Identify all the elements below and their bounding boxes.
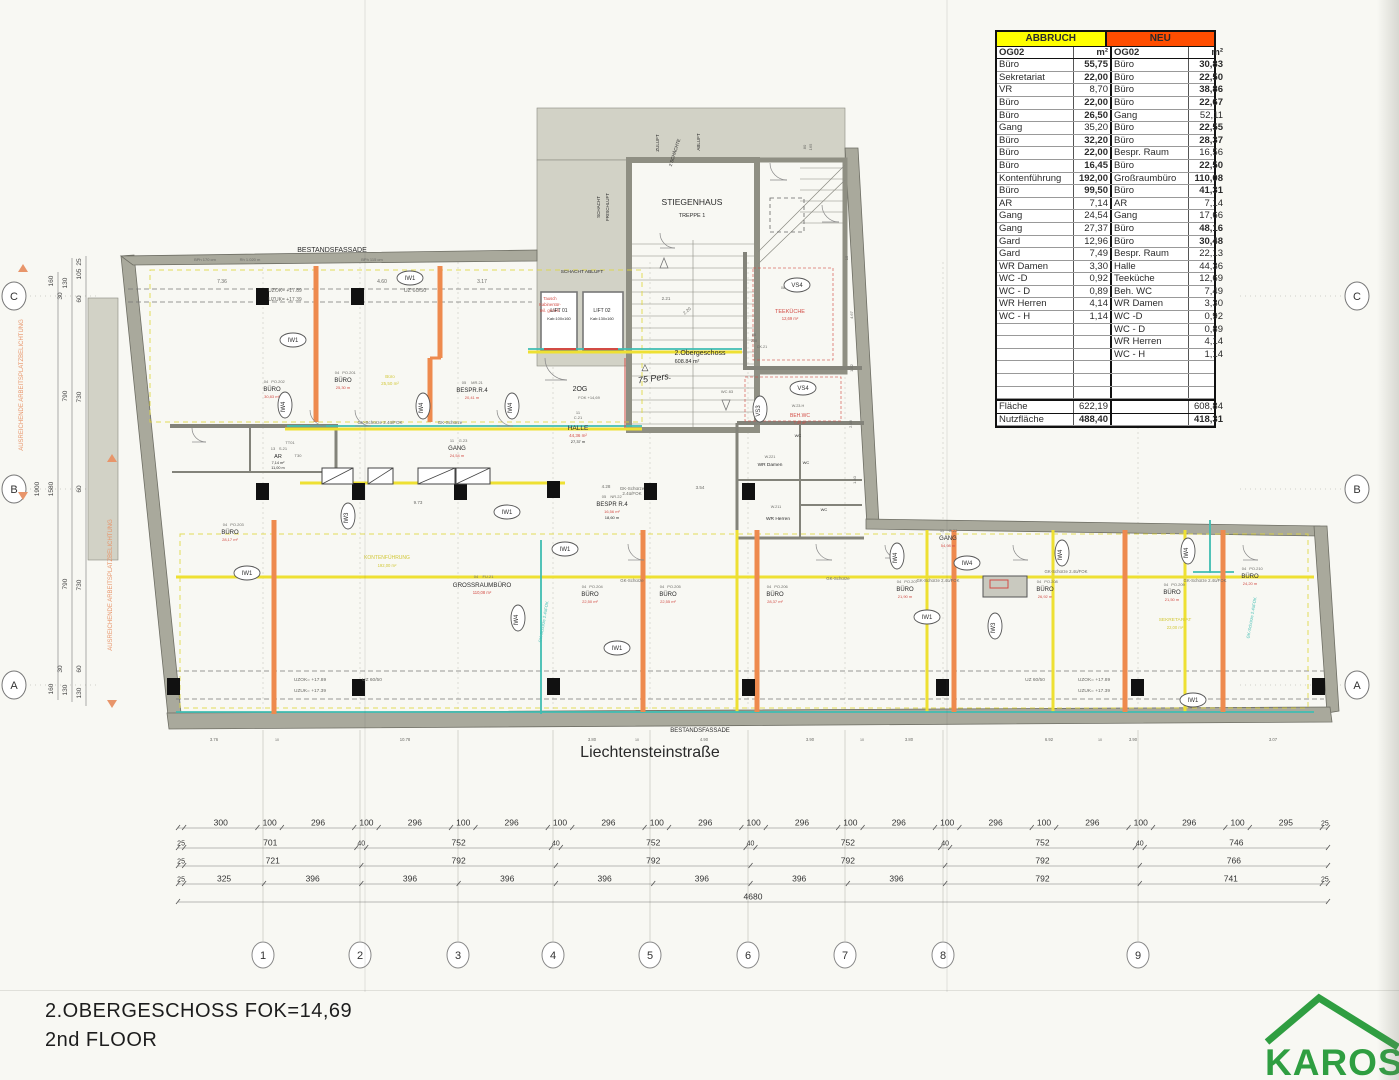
plan-label: FOK +14,69 — [578, 395, 600, 400]
table-row: Gard12,96Büro30,48 — [997, 236, 1214, 249]
dimension-value: 746 — [1229, 838, 1243, 848]
plan-label: 26,92 m — [1038, 594, 1053, 599]
dimension-tick — [176, 899, 180, 904]
dimension-value: 100 — [263, 818, 277, 828]
table-cell: Nutzfläche — [997, 414, 1074, 426]
table-cell: 52,11 — [1189, 110, 1225, 122]
plan-label: PO.204 — [589, 584, 603, 589]
dimension-value: 40 — [552, 841, 560, 848]
plan-label: 9.73 — [414, 500, 423, 505]
plan-label: 10 — [1098, 738, 1102, 742]
reference-tag-label: IW3 — [991, 622, 997, 633]
table-cell: Büro — [997, 110, 1074, 122]
dimension-value: 25 — [177, 877, 185, 884]
dimension-value: 792 — [452, 856, 466, 866]
table-cell: 26,50 — [1074, 110, 1112, 122]
plan-label: 3.80 — [588, 737, 597, 742]
table-cell: 22,00 — [1074, 72, 1112, 84]
table-cell: Büro — [1112, 97, 1189, 109]
dimension-value: 792 — [841, 856, 855, 866]
plan-label: GK-Schürze 2.4ü/FOK — [1184, 578, 1227, 583]
table-cell: 4,14 — [1189, 336, 1225, 348]
dimension-value: 25 — [76, 258, 83, 266]
table-cell: 99,50 — [1074, 185, 1112, 197]
dimension-value: 701 — [263, 838, 277, 848]
plan-label: 110,08 m² — [473, 590, 492, 595]
table-cell: 22,67 — [1189, 97, 1225, 109]
plan-label: NR.22 — [610, 494, 622, 499]
axis-letter: A — [1353, 680, 1361, 692]
dimension-value: 752 — [841, 838, 855, 848]
table-cell — [1074, 324, 1112, 336]
door-swing-arc — [1243, 545, 1258, 560]
dimension-value: 730 — [76, 391, 83, 402]
table-cell: Bespr. Raum — [1112, 147, 1189, 159]
table-cell — [997, 387, 1074, 399]
plan-label: 3.07 — [1269, 737, 1278, 742]
floor-title-en: 2nd FLOOR — [45, 1029, 352, 1052]
plan-label: UZ 60/50 — [1025, 677, 1045, 683]
dimension-tick — [739, 825, 743, 830]
dimension-tick — [176, 825, 180, 830]
scan-fold-line — [0, 990, 1399, 991]
plan-label: WC — [803, 460, 810, 465]
plan-label: 11,00 m — [271, 466, 284, 470]
dimension-value: 296 — [601, 818, 615, 828]
plan-label: 11 — [450, 438, 455, 443]
plan-label: BESTANDSFASSADE — [297, 247, 367, 254]
plan-label: TEEKÜCHE — [775, 308, 805, 315]
structural-column — [1312, 678, 1325, 695]
table-cell: AR — [1112, 198, 1189, 210]
table-cell: 1,14 — [1074, 311, 1112, 323]
table-cell: WC - H — [997, 311, 1074, 323]
dimension-tick — [457, 881, 461, 886]
table-row: Gang24,54Gang17,66 — [997, 210, 1214, 223]
plan-label: 28,37 m² — [767, 599, 783, 604]
table-cell: 55,75 — [1074, 59, 1112, 71]
dimension-value: 300 — [214, 818, 228, 828]
dimension-value: 30 — [57, 292, 64, 300]
plan-label: W.23.H — [792, 404, 805, 408]
table-row: WR Herren4,14WR Damen3,30 — [997, 298, 1214, 311]
reference-tag-label: IW1 — [242, 571, 253, 577]
plan-label: 2.98 — [848, 419, 853, 428]
plan-label: BÜRO — [1241, 573, 1259, 580]
plan-label: 608.84 m² — [675, 359, 700, 365]
plan-label: SCHACHT — [596, 196, 601, 218]
plan-label: 1.52 — [849, 363, 854, 372]
plan-label: 54,98 m — [941, 543, 956, 548]
plan-label: 7,49 m² — [794, 421, 808, 425]
stair-annex-wall — [757, 160, 845, 372]
exterior-wall — [121, 255, 181, 716]
table-row — [997, 361, 1214, 374]
wall-block — [537, 108, 845, 160]
structural-column — [351, 288, 364, 305]
dimension-value: 296 — [1085, 818, 1099, 828]
table-cell: WC -D — [1112, 311, 1189, 323]
plan-label: UZUK= +17.39 — [1078, 688, 1110, 694]
plan-label: 04 — [767, 584, 772, 589]
table-cell: Büro — [997, 59, 1074, 71]
plan-label: BÜRO — [659, 591, 677, 598]
dimension-tick — [749, 863, 753, 868]
dimension-value: 130 — [76, 687, 83, 698]
table-column-header: m² — [1189, 47, 1225, 59]
plan-label: 3.17 — [477, 279, 487, 285]
plan-label: BÜRO — [581, 591, 599, 598]
plan-label: 13 — [271, 446, 276, 451]
plan-label: G.23 — [459, 438, 468, 443]
plan-label: 25,50 m² — [381, 381, 399, 386]
dimension-value: 40 — [747, 841, 755, 848]
plan-label: W.221 — [765, 455, 776, 459]
table-cell: Büro — [1112, 135, 1189, 147]
area-comparison-table: ABBRUCH NEU OG02m²OG02m²Büro55,75Büro30,… — [995, 30, 1216, 428]
dimension-value: 1580 — [48, 481, 55, 496]
plan-label: CK.21 — [757, 345, 768, 349]
table-cell — [1112, 374, 1189, 386]
table-cell: VR — [997, 84, 1074, 96]
plan-label: GK-Schürze 2.4üFOK — [537, 601, 549, 643]
plan-label: BEH.WC — [790, 413, 810, 419]
plan-label: GK-Schürze 2.4üFOK — [1245, 597, 1257, 639]
dimension-tick — [255, 825, 259, 830]
plan-label: GK-Schürze — [826, 576, 850, 581]
table-cell: 24,54 — [1074, 210, 1112, 222]
dimension-value: 790 — [62, 390, 69, 401]
plan-label: ZULUFT — [655, 134, 660, 151]
dimension-tick — [554, 863, 558, 868]
plan-label: BÜRO — [221, 529, 239, 536]
plan-label: S.21 — [279, 446, 288, 451]
plan-label: 05 — [462, 380, 467, 385]
plan-label: BÜRO — [1163, 589, 1181, 596]
plan-label: 3.90 — [806, 737, 815, 742]
plan-label: 27,37 m — [571, 439, 586, 444]
table-cell: Büro — [1112, 84, 1189, 96]
dimension-tick — [933, 825, 937, 830]
table-column-headers: OG02m²OG02m² — [997, 47, 1214, 60]
dimension-tick — [764, 825, 768, 830]
table-cell: 0,89 — [1189, 324, 1225, 336]
table-cell: 110,08 — [1189, 173, 1225, 185]
dimension-tick — [1054, 825, 1058, 830]
dimension-tick — [352, 825, 356, 830]
dimension-value: 130 — [62, 277, 69, 288]
plan-label: 3.54 — [696, 485, 705, 490]
reference-tag-label: IW1 — [288, 338, 299, 344]
plan-label: Kab:100x160 — [547, 316, 571, 321]
table-cell: WR Damen — [997, 261, 1074, 273]
reference-tag-label: VS4 — [791, 283, 803, 289]
plan-label: PO.205 — [667, 584, 681, 589]
table-row: Gang35,20Büro22,55 — [997, 122, 1214, 135]
structural-column — [256, 288, 269, 305]
table-cell: 17,66 — [1189, 210, 1225, 222]
structural-column — [742, 483, 755, 500]
table-cell: Gang — [1112, 110, 1189, 122]
table-cell: 48,16 — [1189, 223, 1225, 235]
table-cell: 22,50 — [1189, 160, 1225, 172]
table-cell: Büro — [1112, 122, 1189, 134]
scan-fold-line — [364, 0, 366, 992]
table-cell — [1074, 387, 1112, 399]
dimension-tick — [861, 825, 865, 830]
table-cell: Gang — [997, 210, 1074, 222]
plan-label: GANG — [448, 446, 466, 452]
dimension-tick — [1138, 881, 1142, 886]
plan-label: WR Damen — [758, 462, 783, 468]
plan-label: 24,54 m — [450, 453, 465, 458]
reference-tag-label: IW4 — [962, 561, 973, 567]
table-body: OG02m²OG02m²Büro55,75Büro30,83Sekretaria… — [997, 47, 1214, 427]
door-swing-arc — [192, 428, 206, 442]
stair-diagonal — [758, 165, 845, 252]
reference-tag-label: IW4 — [1184, 547, 1190, 558]
dimension-value: 752 — [1035, 838, 1049, 848]
dimension-value: 40 — [1136, 841, 1144, 848]
plan-label: 10 — [275, 738, 279, 742]
plan-label: W.211 — [771, 505, 781, 509]
table-cell: 28,37 — [1189, 135, 1225, 147]
dimension-tick — [377, 825, 381, 830]
plan-label: BESPR R.4 — [596, 502, 628, 508]
axis-letter: C — [1353, 291, 1361, 303]
plan-label: STIEGENHAUS — [662, 197, 723, 207]
table-cell: 608,84 — [1189, 401, 1225, 413]
table-cell — [997, 336, 1074, 348]
plan-label: 4.67 — [849, 310, 854, 319]
plan-label: 10.78 — [400, 737, 411, 742]
plan-label: 7,14 m² — [272, 461, 286, 465]
table-row: VR8,70Büro38,86 — [997, 84, 1214, 97]
table-row: WC - H1,14WC -D0,92 — [997, 311, 1214, 324]
table-cell: Bespr. Raum — [1112, 248, 1189, 260]
exterior-wall — [866, 519, 1320, 536]
dimension-tick — [182, 825, 186, 830]
dimension-tick — [1223, 825, 1227, 830]
table-cell: 32,20 — [1074, 135, 1112, 147]
table-cell: WC - H — [1112, 349, 1189, 361]
structural-column — [547, 481, 560, 498]
plan-label: PO.203 — [230, 522, 244, 527]
plan-label: 165 — [808, 143, 813, 150]
plan-label: MR.21 — [471, 380, 484, 385]
table-cell: 0,89 — [1074, 286, 1112, 298]
reference-tag-label: IW1 — [922, 615, 933, 621]
plan-label: 22,55 m² — [660, 599, 676, 604]
table-cell — [997, 349, 1074, 361]
plan-label: BESTANDSFASSADE — [670, 728, 730, 734]
structural-column — [167, 678, 180, 695]
dimension-tick — [1326, 899, 1330, 904]
table-cell: Sekretariat — [997, 72, 1074, 84]
plan-label: FRISCHLUFT — [605, 193, 610, 221]
plan-label: Büro — [385, 374, 395, 379]
table-cell: WR Herren — [1112, 336, 1189, 348]
reference-tag-label: IW1 — [405, 276, 416, 282]
structural-column — [454, 483, 467, 500]
table-cell: Büro — [1112, 59, 1189, 71]
plan-label: 80 — [752, 333, 756, 337]
reference-tag-label: IW1 — [1188, 698, 1199, 704]
table-cell: 3,30 — [1074, 261, 1112, 273]
table-row: Gard7,49Bespr. Raum22,13 — [997, 248, 1214, 261]
scan-fold-line — [946, 0, 948, 992]
plan-label: UZ 60/50 — [404, 288, 427, 294]
plan-label: 18,60 m — [605, 515, 620, 520]
plan-label: SEKRETARIAT — [1159, 617, 1192, 623]
plan-label: UZUK= +17.39 — [294, 688, 326, 694]
plan-label: LIFT 02 — [593, 308, 610, 314]
table-cell: Büro — [997, 185, 1074, 197]
table-cell — [1112, 361, 1189, 373]
table-cell — [997, 361, 1074, 373]
neu-header: NEU — [1107, 32, 1215, 47]
grid-bubble-number: 3 — [455, 950, 461, 962]
reference-tag-label: IW4 — [893, 552, 899, 563]
dimension-value: 790 — [62, 578, 69, 589]
plan-label: 05 — [602, 494, 607, 499]
table-row: Büro32,20Büro28,37 — [997, 135, 1214, 148]
plan-label: AR — [274, 454, 282, 460]
table-cell: 22,50 — [1189, 72, 1225, 84]
plan-label: GK-Schürze — [438, 420, 463, 425]
table-cell — [1112, 387, 1189, 399]
plan-label: 44,36 m² — [569, 433, 587, 438]
table-row: Büro55,75Büro30,83 — [997, 59, 1214, 72]
daylight-arrow — [18, 264, 28, 272]
stair-arrow — [660, 258, 668, 268]
dimension-value: 396 — [403, 874, 417, 884]
plan-label: 24,20 m — [1243, 581, 1258, 586]
axis-letter: A — [10, 680, 18, 692]
table-cell: 16,56 — [1189, 147, 1225, 159]
table-cell: 35,20 — [1074, 122, 1112, 134]
grid-bubble-number: 5 — [647, 950, 653, 962]
dimension-tick — [262, 881, 266, 886]
dimension-tick — [280, 825, 284, 830]
structural-column — [256, 483, 269, 500]
dimension-value: 721 — [266, 856, 280, 866]
plan-label: 04 — [223, 522, 228, 527]
table-cell: WR Damen — [1112, 298, 1189, 310]
table-cell: 7,49 — [1074, 248, 1112, 260]
table-header: ABBRUCH NEU — [997, 32, 1214, 47]
dimension-tick — [836, 825, 840, 830]
table-cell: Kontenführung — [997, 173, 1074, 185]
plan-label: 3.76 — [210, 737, 219, 742]
plan-label: SCHACHT ABLUFT — [561, 269, 604, 275]
reference-tag-label: IW4 — [508, 402, 514, 413]
table-cell: Büro — [997, 135, 1074, 147]
dimension-value: 792 — [1035, 856, 1049, 866]
table-row: AR7,14AR7,14 — [997, 198, 1214, 211]
structural-column — [644, 483, 657, 500]
table-row: WC -D0,92Teeküche12,69 — [997, 273, 1214, 286]
plan-label: PO.206 — [774, 584, 788, 589]
table-cell: 22,00 — [1074, 147, 1112, 159]
dimension-tick — [1138, 863, 1142, 868]
dimension-value: 296 — [408, 818, 422, 828]
plan-label: FU.21 — [483, 574, 495, 579]
table-cell — [1189, 387, 1225, 399]
table-row — [997, 374, 1214, 387]
dimension-value: 741 — [1224, 874, 1238, 884]
plan-label: 192,00 m² — [378, 563, 397, 568]
plan-label: 30,83 m² — [264, 394, 280, 399]
grid-bubble-number: 4 — [550, 950, 556, 962]
table-cell: 622,19 — [1074, 401, 1112, 413]
daylight-annotation: AUSREICHENDE ARBEITSPLATZBELICHTUNG — [19, 319, 25, 451]
dimension-tick — [570, 825, 574, 830]
table-cell: WC -D — [997, 273, 1074, 285]
plan-label: PO.201 — [342, 370, 356, 375]
plan-label: BESPR.R.4 — [456, 388, 488, 394]
plan-label: 20,41 m — [465, 395, 480, 400]
dimension-value: 296 — [988, 818, 1002, 828]
dimension-value: 100 — [359, 818, 373, 828]
table-cell: 38,86 — [1189, 84, 1225, 96]
dimension-tick — [1151, 825, 1155, 830]
plan-label: 200 — [751, 339, 757, 343]
table-row: Gang27,37Büro48,16 — [997, 223, 1214, 236]
scan-edge-shadow — [1377, 0, 1399, 1080]
plan-label: 3.90 — [1129, 737, 1138, 742]
dimension-value: 25 — [177, 841, 185, 848]
dimension-value: 296 — [311, 818, 325, 828]
reference-tag-label: IW3 — [344, 512, 350, 523]
table-cell: Büro — [997, 160, 1074, 172]
table-cell: Gard — [997, 236, 1074, 248]
table-cell: WR Herren — [997, 298, 1074, 310]
table-column-header: OG02 — [1112, 47, 1189, 59]
table-cell: Büro — [1112, 236, 1189, 248]
dimension-tick — [546, 825, 550, 830]
plan-label: BÜRO — [766, 591, 784, 598]
plan-label: 6.92 — [1045, 737, 1054, 742]
plan-label: 04 — [660, 584, 665, 589]
plan-label: 3.80 — [905, 737, 914, 742]
plan-label: 04 — [897, 579, 902, 584]
table-cell: Büro — [1112, 160, 1189, 172]
grid-bubble-number: 1 — [260, 950, 266, 962]
dimension-value: 396 — [889, 874, 903, 884]
street-label: Liechtensteinstraße — [540, 744, 760, 762]
plan-label: 2.20 — [682, 306, 692, 316]
plan-label: PO.210 — [1249, 566, 1263, 571]
plan-label: ABLUFT — [696, 133, 701, 151]
structural-column — [547, 678, 560, 695]
dimension-tick — [1326, 845, 1330, 850]
dimension-value: 752 — [452, 838, 466, 848]
reference-tag-label: IW4 — [514, 614, 520, 625]
table-cell: 1,14 — [1189, 349, 1225, 361]
dimension-value: 100 — [747, 818, 761, 828]
table-cell: 30,83 — [1189, 59, 1225, 71]
table-cell — [997, 324, 1074, 336]
dimension-value: 4680 — [744, 892, 763, 902]
plan-label: BÜRO — [1036, 586, 1054, 593]
table-cell: Büro — [997, 147, 1074, 159]
table-cell: 12,69 — [1189, 273, 1225, 285]
table-cell — [1074, 349, 1112, 361]
table-cell: 41,31 — [1189, 185, 1225, 197]
table-cell: 44,36 — [1189, 261, 1225, 273]
table-cell: 192,00 — [1074, 173, 1112, 185]
